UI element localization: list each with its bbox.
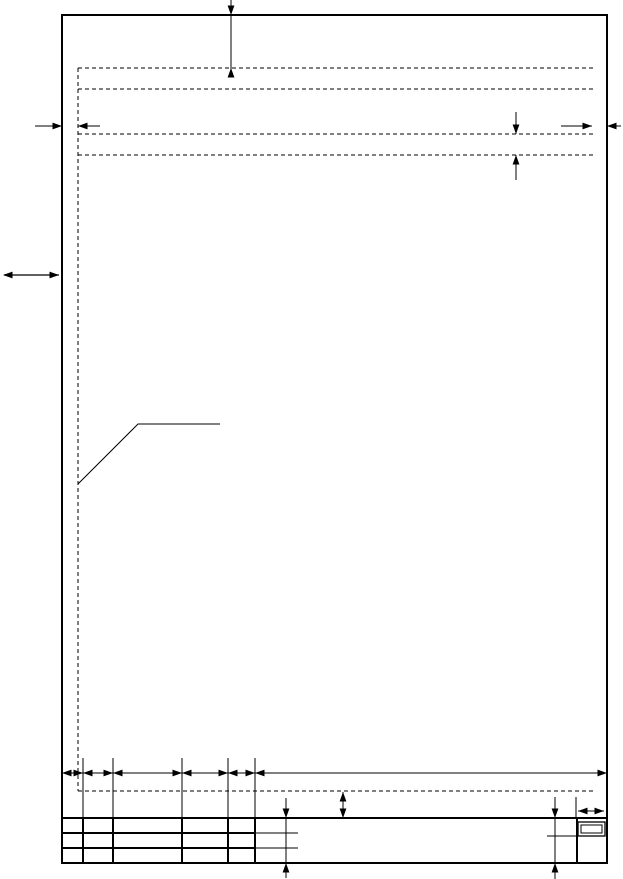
sheet-number-box-inner: [581, 825, 602, 833]
leader-line: [78, 424, 220, 484]
arrowhead-left: [182, 770, 192, 777]
arrowhead-right: [219, 770, 229, 777]
arrowhead-left: [62, 770, 72, 777]
arrowhead-left: [578, 808, 588, 815]
arrowhead-up: [552, 863, 559, 873]
arrowhead-up: [228, 68, 235, 78]
arrowhead-right: [53, 123, 63, 130]
arrowhead-left: [255, 770, 265, 777]
arrowhead-left: [228, 770, 238, 777]
arrowhead-left: [3, 272, 13, 279]
header-spacing-dimension: [513, 112, 520, 180]
arrowhead-up: [513, 155, 520, 165]
arrowhead-down: [513, 125, 520, 135]
arrowhead-right: [173, 770, 183, 777]
binding-margin-arrow: [3, 272, 59, 279]
arrowhead-right: [595, 808, 605, 815]
arrowhead-up: [283, 863, 290, 873]
arrowhead-left: [113, 770, 123, 777]
arrowhead-up: [340, 792, 347, 802]
left-margin-dimension: [35, 123, 100, 130]
arrowhead-down: [228, 6, 235, 16]
title-height-dimension-left: [283, 798, 290, 878]
arrowhead-left: [607, 123, 617, 130]
arrowhead-down: [283, 809, 290, 819]
arrowhead-right: [104, 770, 114, 777]
sheet-number-cell-width-dimension: [578, 808, 604, 815]
right-margin-dimension: [561, 123, 621, 130]
title-height-dimension-right: [552, 797, 559, 879]
arrowhead-left: [78, 123, 88, 130]
margin-callout-leader: [78, 424, 220, 484]
sheet-frame: [62, 15, 607, 863]
arrowhead-left: [83, 770, 93, 777]
arrowhead-right: [246, 770, 256, 777]
arrowhead-down: [552, 809, 559, 819]
column-width-dimension-chain: [62, 770, 607, 777]
title-block: [62, 818, 607, 863]
column-extension-lines: [83, 758, 576, 818]
top-margin-dimension: [228, 0, 235, 78]
sheet-border: [62, 15, 607, 863]
arrowhead-right: [598, 770, 608, 777]
arrowhead-right: [583, 123, 593, 130]
footer-gap-dimension: [340, 792, 347, 818]
arrowhead-down: [340, 809, 347, 819]
arrowhead-right: [50, 272, 60, 279]
drawing-canvas: [0, 0, 623, 879]
sheet-number-box-outer: [578, 822, 605, 836]
